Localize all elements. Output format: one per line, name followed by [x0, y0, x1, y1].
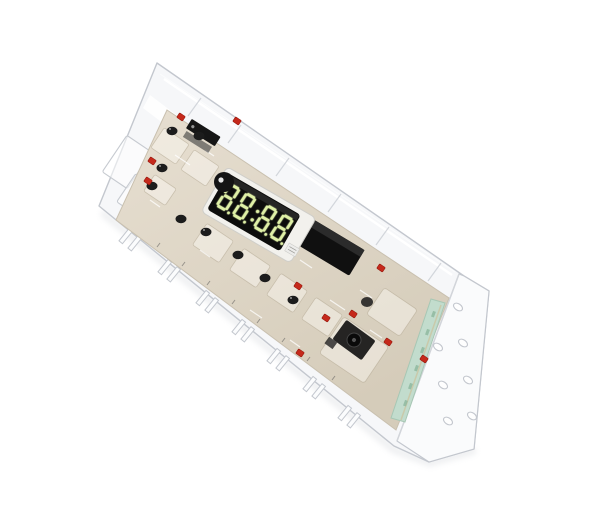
dark-component: [361, 297, 373, 307]
buzzer: [214, 172, 234, 192]
control-board-photo: [0, 0, 600, 526]
product-photo-stage: [0, 0, 600, 526]
